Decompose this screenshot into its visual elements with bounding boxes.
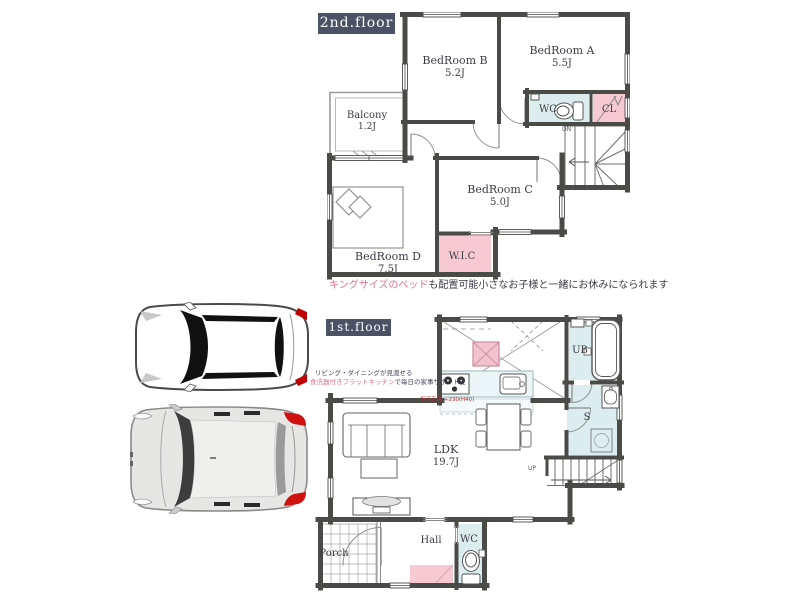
kitchen-note-line2: 食洗器付きフラットキッチンで毎日の家事サポートに — [310, 376, 466, 386]
room-bedroom-a: BedRoom A 5.5J — [514, 45, 610, 69]
ceiling-note: 折下天井 +230(H40) — [420, 395, 474, 403]
room-wc-1f: WC — [454, 534, 484, 545]
tv-board-icon — [353, 497, 410, 516]
hall-mat — [410, 565, 453, 584]
washbasin-icon — [602, 386, 619, 408]
floor2-caption: キングサイズのベッドも配置可能小さなお子様と一緒にお休みになられます — [329, 276, 668, 291]
sink-icon — [500, 374, 526, 394]
floor-plan-page: 2nd.floor — [0, 0, 800, 600]
room-storage: S — [572, 412, 602, 423]
room-balcony: Balcony 1.2J — [327, 110, 407, 132]
car-sedan-top-view-icon — [132, 302, 312, 392]
room-bedroom-c: BedRoom C 5.0J — [452, 184, 548, 208]
stairs-up-label: UP — [528, 465, 546, 472]
bed-icon — [333, 187, 403, 248]
room-wc-2f: WC — [533, 104, 563, 115]
stairs-dn-label: DN — [562, 126, 582, 133]
room-bedroom-d: BedRoom D 7.5J — [340, 251, 436, 275]
room-ub: UB — [565, 345, 595, 356]
refrigerator-box — [473, 342, 499, 366]
coffee-table-icon — [361, 459, 397, 478]
room-ldk: LDK 19.7J — [406, 444, 486, 468]
sofa-icon — [343, 413, 410, 457]
room-bedroom-b: BedRoom B 5.2J — [407, 55, 503, 79]
room-hall: Hall — [406, 535, 456, 546]
car-suv-top-view-icon — [126, 404, 312, 514]
room-cl: CL — [594, 104, 624, 115]
room-wic: W.I.C — [436, 251, 488, 262]
room-porch: Porch — [310, 548, 358, 559]
